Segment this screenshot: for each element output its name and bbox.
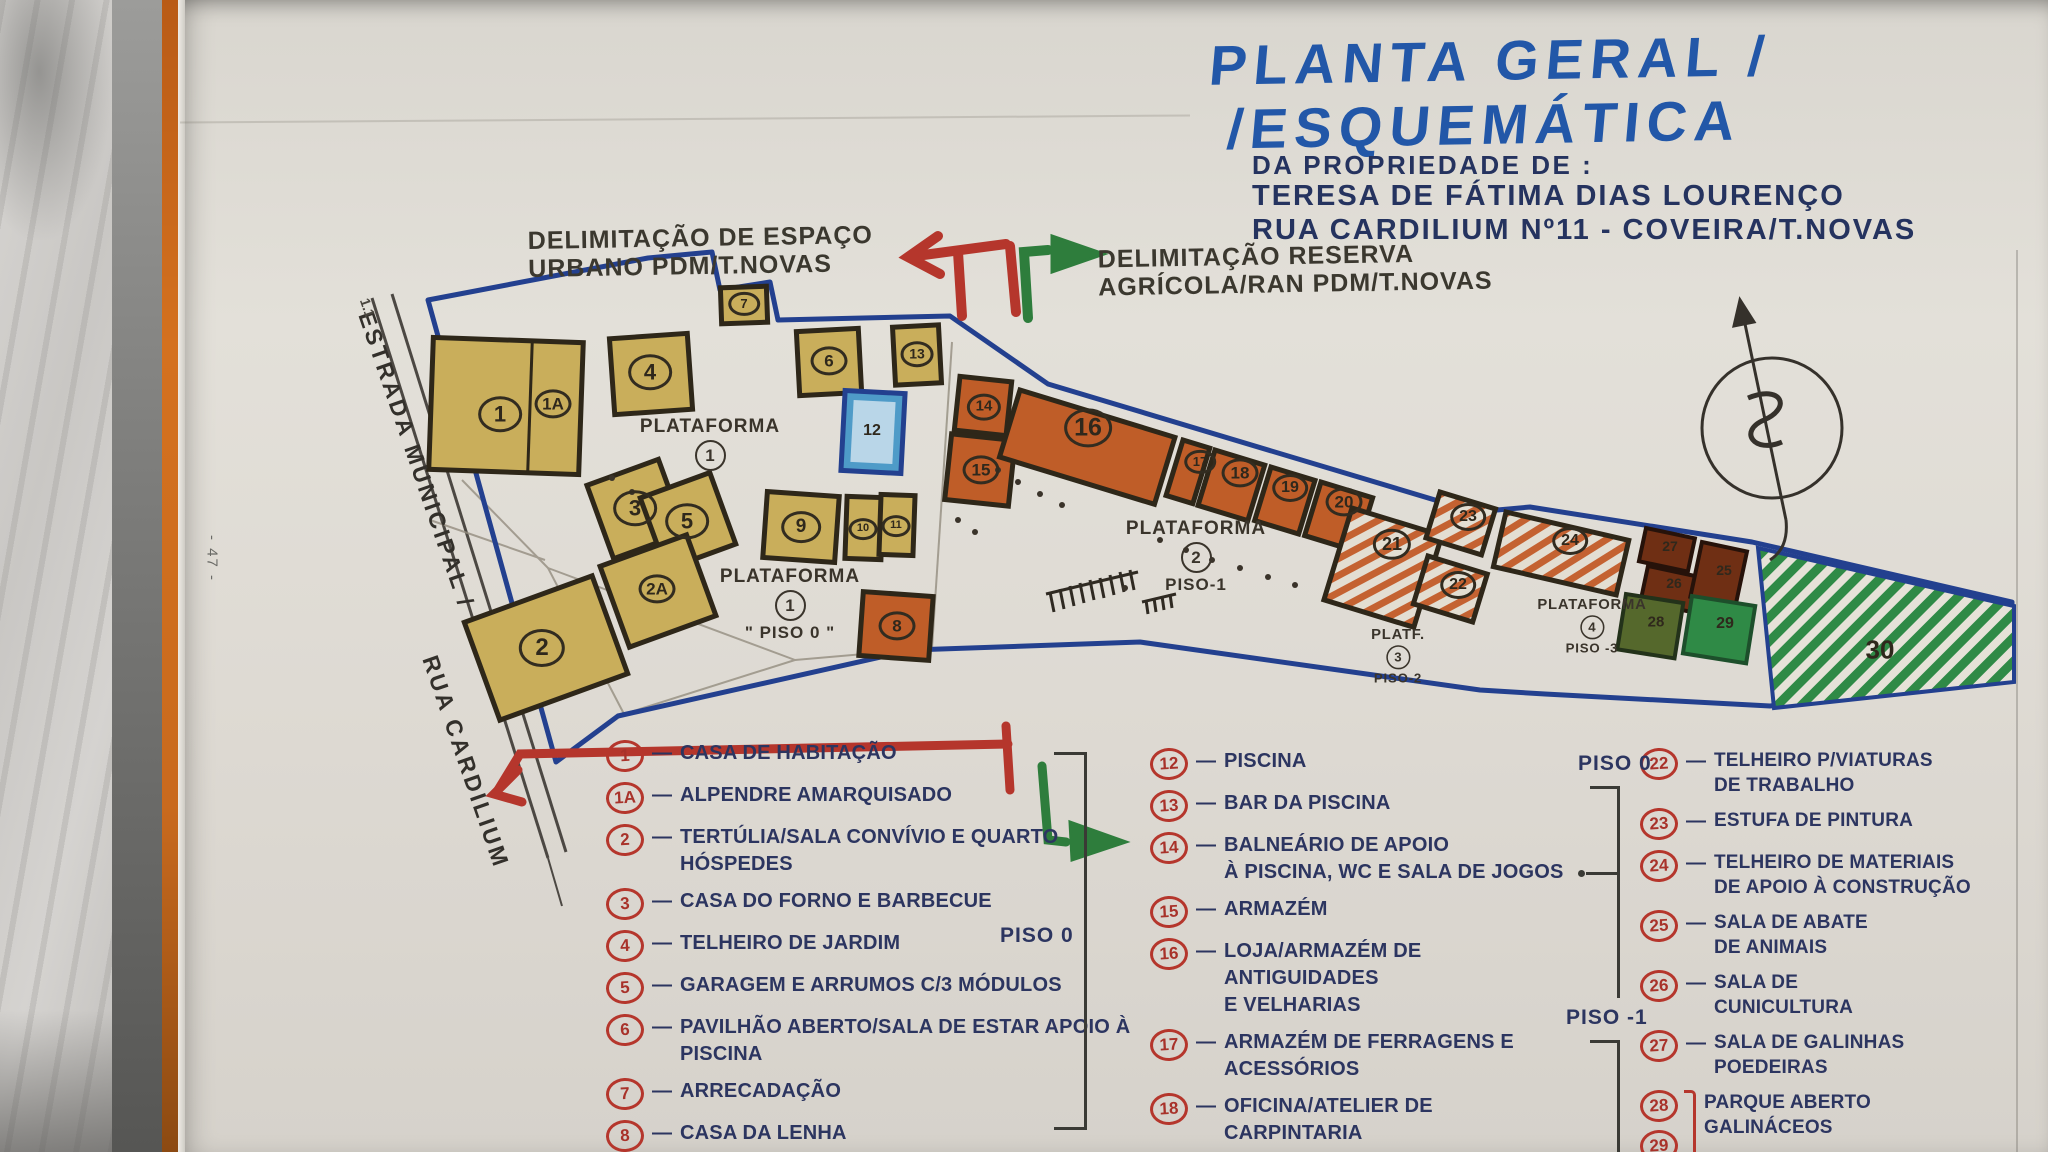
- legend-number-7: 7: [605, 1077, 645, 1111]
- plan-marker-20: 20: [1326, 487, 1363, 516]
- plan-marker-10: 10: [849, 518, 878, 540]
- legend-item: 14—BALNEÁRIO DE APOIO À PISCINA, WC E SA…: [1150, 832, 1570, 886]
- piso-1-bracket-col3-tick: [1590, 1040, 1619, 1043]
- piso0-bracket-col2: [1084, 752, 1087, 1130]
- legend-item-text: SALA DE ABATE DE ANIMAIS: [1714, 910, 1868, 960]
- legend-number-1A: 1A: [605, 781, 645, 815]
- legend-dash: —: [652, 782, 672, 809]
- piso0-label-col3: PISO 0: [1578, 752, 1652, 776]
- legend-dash: —: [652, 1078, 672, 1105]
- legend-number-24: 24: [1639, 849, 1679, 883]
- legend-item: 15—ARMAZÉM: [1150, 896, 1570, 928]
- legend-item-text: ALPENDRE AMARQUISADO: [680, 782, 952, 809]
- legend-group-bracket: [1684, 1090, 1696, 1152]
- platform-piso: PISO -3: [1526, 641, 1659, 657]
- photo-of-hand-drawn-site-plan: PLANTA GERAL / /ESQUEMÁTICA DA PROPRIEDA…: [0, 0, 2048, 1152]
- road-label-upper: ESTRADA MUNICIPAL /: [352, 308, 479, 612]
- plan-marker-22: 22: [1440, 571, 1476, 599]
- legend-item: 7—ARRECADAÇÃO: [606, 1078, 1146, 1110]
- legend-number-8: 8: [605, 1119, 645, 1152]
- legend-dash: —: [1196, 1093, 1216, 1120]
- piso-1-bracket-col3: [1617, 1040, 1620, 1152]
- legend-number-23: 23: [1639, 807, 1679, 841]
- plan-marker-26: 26: [1666, 575, 1682, 591]
- title-owner-name: TERESA DE FÁTIMA DIAS LOURENÇO: [1252, 180, 1845, 213]
- legend-number-13: 13: [1149, 789, 1189, 823]
- legend-dash: —: [1196, 748, 1216, 775]
- legend-item: 27—SALA DE GALINHAS POEDEIRAS: [1640, 1030, 1980, 1080]
- platform-number: 1: [695, 440, 726, 471]
- legend-item-text: BALNEÁRIO DE APOIO À PISCINA, WC E SALA …: [1224, 832, 1564, 886]
- plan-marker-4: 4: [628, 354, 672, 390]
- plan-marker-2: 2: [519, 629, 565, 667]
- title-owner-label: DA PROPRIEDADE DE :: [1252, 150, 1593, 181]
- platform-number: 2: [1181, 542, 1212, 573]
- legend-item: 18—OFICINA/ATELIER DE CARPINTARIA: [1150, 1093, 1570, 1147]
- legend-item-text: CASA DO FORNO E BARBECUE: [680, 888, 992, 915]
- platform-label-4: PLATAFORMA4PISO -3: [1526, 596, 1659, 656]
- platform-word: PLATAFORMA: [1111, 518, 1281, 540]
- legend-column-3: 22—TELHEIRO P/VIATURAS DE TRABALHO23—EST…: [1640, 748, 1980, 1152]
- legend-dash: —: [1686, 970, 1706, 997]
- legend-number-14: 14: [1149, 831, 1189, 865]
- legend-item: 2—TERTÚLIA/SALA CONVÍVIO E QUARTO HÓSPED…: [606, 824, 1146, 878]
- platform-word: PLATAFORMA: [1526, 596, 1659, 613]
- plan-marker-2A: 2A: [639, 574, 676, 603]
- legend-number-26: 26: [1639, 969, 1679, 1003]
- legend-item-text: LOJA/ARMAZÉM DE ANTIGUIDADES E VELHARIAS: [1224, 938, 1570, 1019]
- legend-number-28: 28: [1639, 1089, 1679, 1123]
- legend-number-6: 6: [605, 1013, 645, 1047]
- plan-marker-9: 9: [781, 511, 821, 543]
- text-overlay: PLANTA GERAL / /ESQUEMÁTICA DA PROPRIEDA…: [0, 0, 2048, 1152]
- legend-dash: —: [652, 930, 672, 957]
- legend-number-4: 4: [605, 929, 645, 963]
- legend-item: 8—CASA DA LENHA: [606, 1120, 1146, 1152]
- legend-item: 22—TELHEIRO P/VIATURAS DE TRABALHO: [1640, 748, 1980, 798]
- legend-item: 3—CASA DO FORNO E BARBECUE: [606, 888, 1146, 920]
- legend-item-text: PARQUE ABERTO GALINÁCEOS: [1704, 1090, 1871, 1140]
- legend-number-27: 27: [1639, 1029, 1679, 1063]
- legend-item: 12—PISCINA: [1150, 748, 1570, 780]
- legend-dash: —: [1686, 850, 1706, 877]
- legend-dash: —: [652, 824, 672, 851]
- piso-1-label-col3: PISO -1: [1566, 1006, 1648, 1030]
- platform-number: 4: [1580, 615, 1604, 639]
- plan-marker-15: 15: [963, 455, 1000, 484]
- legend-dash: —: [1686, 1030, 1706, 1057]
- margin-page-note: - 47 -: [204, 529, 221, 589]
- plan-marker-23: 23: [1450, 503, 1486, 531]
- plan-marker-30: 30: [1866, 635, 1895, 666]
- platform-piso: " PISO 0 ": [705, 623, 875, 643]
- legend-item-text: ESTUFA DE PINTURA: [1714, 808, 1913, 833]
- platform-number: 1: [775, 590, 806, 621]
- legend-number-1: 1: [605, 739, 645, 773]
- plan-marker-25: 25: [1716, 562, 1732, 578]
- plan-marker-17: 17: [1184, 450, 1216, 474]
- legend-item: 26—SALA DE CUNICULTURA: [1640, 970, 1980, 1020]
- platform-label-2: PLATAFORMA2PISO-1: [1111, 518, 1281, 595]
- legend-item: 24—TELHEIRO DE MATERIAIS DE APOIO À CONS…: [1640, 850, 1980, 900]
- plan-marker-16: 16: [1064, 408, 1112, 447]
- legend-dash: —: [1196, 1029, 1216, 1056]
- plan-marker-27: 27: [1662, 538, 1678, 554]
- legend-item-text: TELHEIRO P/VIATURAS DE TRABALHO: [1714, 748, 1933, 798]
- legend-number-5: 5: [605, 971, 645, 1005]
- legend-item-text: ARRECADAÇÃO: [680, 1078, 841, 1105]
- page-title-line1: PLANTA GERAL /: [1207, 23, 1774, 98]
- legend-item-text: GARAGEM E ARRUMOS C/3 MÓDULOS: [680, 972, 1062, 999]
- urban-boundary-label: DELIMITAÇÃO DE ESPAÇO URBANO PDM/T.NOVAS: [528, 221, 874, 283]
- plan-marker-3: 3: [613, 490, 657, 526]
- plan-marker-28: 28: [1648, 614, 1665, 631]
- legend-item-text: OFICINA/ATELIER DE CARPINTARIA: [1224, 1093, 1570, 1147]
- platform-word: PLATAFORMA: [625, 416, 795, 438]
- legend-dash: —: [652, 1120, 672, 1147]
- legend-item-text: TELHEIRO DE JARDIM: [680, 930, 900, 957]
- plan-marker-18: 18: [1222, 458, 1259, 487]
- legend-dash: —: [652, 740, 672, 767]
- plan-marker-7: 7: [728, 292, 760, 316]
- legend-dash: —: [652, 972, 672, 999]
- legend-item: 23—ESTUFA DE PINTURA: [1640, 808, 1980, 840]
- piso0-bracket-col3-tick: [1586, 872, 1619, 875]
- plan-marker-19: 19: [1272, 474, 1308, 502]
- plan-marker-6: 6: [811, 346, 848, 375]
- legend-item-text: ARMAZÉM DE FERRAGENS E ACESSÓRIOS: [1224, 1029, 1570, 1083]
- legend-item: 2829PARQUE ABERTO GALINÁCEOS: [1640, 1090, 1980, 1152]
- legend-item: 25—SALA DE ABATE DE ANIMAIS: [1640, 910, 1980, 960]
- legend-dash: —: [1686, 748, 1706, 775]
- plan-marker-21: 21: [1373, 529, 1411, 560]
- plan-marker-12: 12: [863, 422, 881, 440]
- platform-piso: PISO-2: [1332, 671, 1465, 687]
- legend-item: 1—CASA DE HABITAÇÃO: [606, 740, 1146, 772]
- legend-item-text: CASA DA LENHA: [680, 1120, 847, 1147]
- legend-item: 5—GARAGEM E ARRUMOS C/3 MÓDULOS: [606, 972, 1146, 1004]
- plan-marker-24: 24: [1552, 527, 1588, 555]
- piso0-bracket-col2-tick: [1054, 752, 1086, 755]
- piso0-bracket-col3-tick: [1590, 786, 1619, 789]
- platform-word: PLATAFORMA: [705, 566, 875, 588]
- legend-dash: —: [1686, 808, 1706, 835]
- legend-number-12: 12: [1149, 747, 1189, 781]
- platform-label-3: PLATF.3PISO-2: [1332, 626, 1465, 686]
- legend-item-text: SALA DE CUNICULTURA: [1714, 970, 1853, 1020]
- road-label-lower: RUA CARDILIUM: [416, 652, 514, 872]
- legend-item-text: SALA DE GALINHAS POEDEIRAS: [1714, 1030, 1904, 1080]
- plan-marker-5: 5: [665, 503, 709, 539]
- legend-number-17: 17: [1149, 1028, 1189, 1062]
- legend-item-text: TERTÚLIA/SALA CONVÍVIO E QUARTO HÓSPEDES: [680, 824, 1146, 878]
- legend-dash: —: [1196, 896, 1216, 923]
- piso0-bracket-col2-tick: [1054, 1127, 1086, 1130]
- legend-number-2: 2: [605, 823, 645, 857]
- platform-piso: PISO-1: [1111, 575, 1281, 595]
- legend-dash: —: [652, 1014, 672, 1041]
- plan-marker-8: 8: [879, 611, 916, 640]
- legend-number-29: 29: [1639, 1129, 1679, 1152]
- bracket-dot: [1578, 870, 1585, 877]
- legend-number-18: 18: [1149, 1092, 1189, 1126]
- piso0-label-col2: PISO 0: [1000, 924, 1074, 948]
- agri-boundary-label: DELIMITAÇÃO RESERVA AGRÍCOLA/RAN PDM/T.N…: [1098, 239, 1493, 302]
- legend-column-2: 12—PISCINA13—BAR DA PISCINA14—BALNEÁRIO …: [1150, 748, 1570, 1152]
- platform-word: PLATF.: [1332, 626, 1465, 643]
- platform-label-1: PLATAFORMA1" PISO 0 ": [705, 566, 875, 643]
- legend-number-3: 3: [605, 887, 645, 921]
- legend-item-text: CASA DE HABITAÇÃO: [680, 740, 897, 767]
- plan-marker-13: 13: [901, 341, 934, 367]
- legend-number-16: 16: [1149, 937, 1189, 971]
- legend-dash: —: [1686, 910, 1706, 937]
- plan-marker-1: 1: [478, 396, 522, 432]
- legend-number-25: 25: [1639, 909, 1679, 943]
- legend-dash: —: [652, 888, 672, 915]
- legend-number-15: 15: [1149, 895, 1189, 929]
- legend-item-text: ARMAZÉM: [1224, 896, 1328, 923]
- plan-marker-11: 11: [882, 515, 911, 537]
- legend-item-text: PAVILHÃO ABERTO/SALA DE ESTAR APOIO À PI…: [680, 1014, 1146, 1068]
- legend-item-text: BAR DA PISCINA: [1224, 790, 1391, 817]
- plan-marker-1A: 1A: [535, 389, 572, 418]
- legend-item-text: PISCINA: [1224, 748, 1307, 775]
- legend-item: 13—BAR DA PISCINA: [1150, 790, 1570, 822]
- legend-item: 17—ARMAZÉM DE FERRAGENS E ACESSÓRIOS: [1150, 1029, 1570, 1083]
- piso0-bracket-col3: [1617, 786, 1620, 998]
- legend-item: 1A—ALPENDRE AMARQUISADO: [606, 782, 1146, 814]
- legend-dash: —: [1196, 790, 1216, 817]
- legend-dash: —: [1196, 938, 1216, 965]
- platform-number: 3: [1386, 645, 1410, 669]
- plan-marker-29: 29: [1716, 615, 1734, 633]
- legend-item: 16—LOJA/ARMAZÉM DE ANTIGUIDADES E VELHAR…: [1150, 938, 1570, 1019]
- legend-item: 6—PAVILHÃO ABERTO/SALA DE ESTAR APOIO À …: [606, 1014, 1146, 1068]
- legend-item-text: TELHEIRO DE MATERIAIS DE APOIO À CONSTRU…: [1714, 850, 1971, 900]
- platform-label-1: PLATAFORMA1: [625, 416, 795, 473]
- legend-dash: —: [1196, 832, 1216, 859]
- plan-marker-14: 14: [967, 394, 1001, 421]
